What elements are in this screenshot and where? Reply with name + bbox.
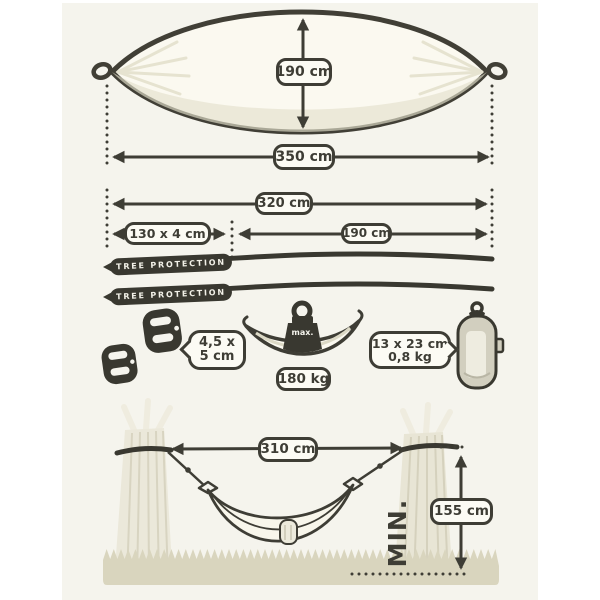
- carabiner-size-line1: 4,5 x: [199, 336, 235, 350]
- pack-size-line2: 0,8 kg: [388, 350, 432, 363]
- hammock-pouch: [280, 520, 297, 544]
- strap-size-label: 130 x 4 cm: [124, 222, 211, 245]
- rope-bead: [185, 467, 191, 473]
- carabiner-icon: [141, 307, 184, 355]
- total-length-label: 320 cm: [255, 192, 313, 215]
- tree-distance-label: 310 cm: [258, 437, 318, 462]
- pack-sack-icon: [458, 303, 503, 388]
- bed-length-label: 190 cm: [341, 223, 392, 244]
- min-text: MIN.: [382, 498, 412, 568]
- tree-branches: [403, 405, 450, 434]
- hammock-dimension-diagram: 190 cm 350 cm 320 cm 130 x 4 cm 190 cm T…: [0, 0, 600, 600]
- pack-size-bubble: 13 x 23 cm 0,8 kg: [369, 331, 451, 369]
- max-load-label: 180 kg: [276, 367, 331, 391]
- rope-bead: [377, 463, 383, 469]
- setup-scene: [103, 401, 499, 585]
- carabiner-icons: [100, 307, 184, 386]
- carabiner-size-line2: 5 cm: [200, 350, 235, 364]
- grass-ground: [103, 549, 499, 585]
- max-text: max.: [287, 329, 318, 337]
- sack-panel: [466, 331, 486, 378]
- carabiner-icon: [100, 342, 139, 385]
- hammock-height-label: 190 cm: [276, 58, 332, 86]
- mini-hammock-tip: [244, 317, 247, 326]
- hammock-loop-right: [487, 62, 507, 80]
- hammock-loop-left: [92, 62, 112, 80]
- diagram-artwork: [0, 0, 600, 600]
- mini-hammock-tip: [359, 311, 362, 321]
- tree-branches: [124, 401, 170, 430]
- mount-height-label: 155 cm: [430, 498, 493, 525]
- hammock-length-label: 350 cm: [273, 144, 335, 170]
- weight-cap: [292, 316, 313, 324]
